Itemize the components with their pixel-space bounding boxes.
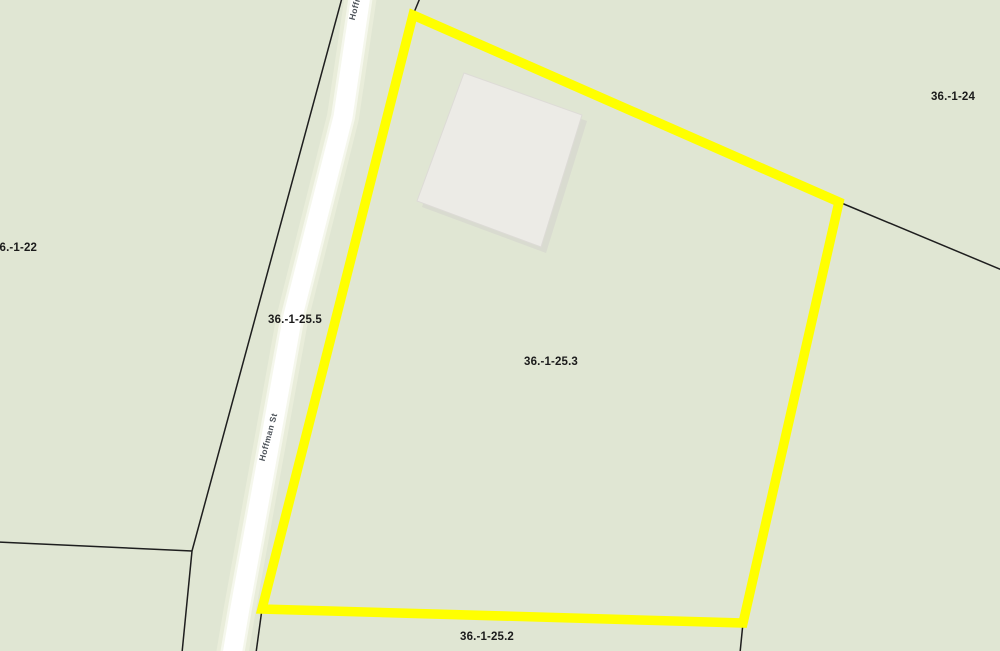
parcel-boundary-line-road-east [256, 609, 262, 651]
parcel-boundary-line-northeast [839, 202, 1000, 270]
parcel-boundary-line-south [182, 551, 192, 651]
map-layers [0, 0, 1000, 651]
road-surface [231, 0, 362, 651]
road-hoffman-st [231, 0, 362, 651]
parcel-map-canvas[interactable]: 36.-1-24 36.-1-22 36.-1-25.5 36.-1-25.3 … [0, 0, 1000, 651]
building-footprint [417, 73, 582, 247]
building-footprint-group [417, 73, 587, 253]
parcel-boundary-line-southwest [0, 542, 192, 551]
